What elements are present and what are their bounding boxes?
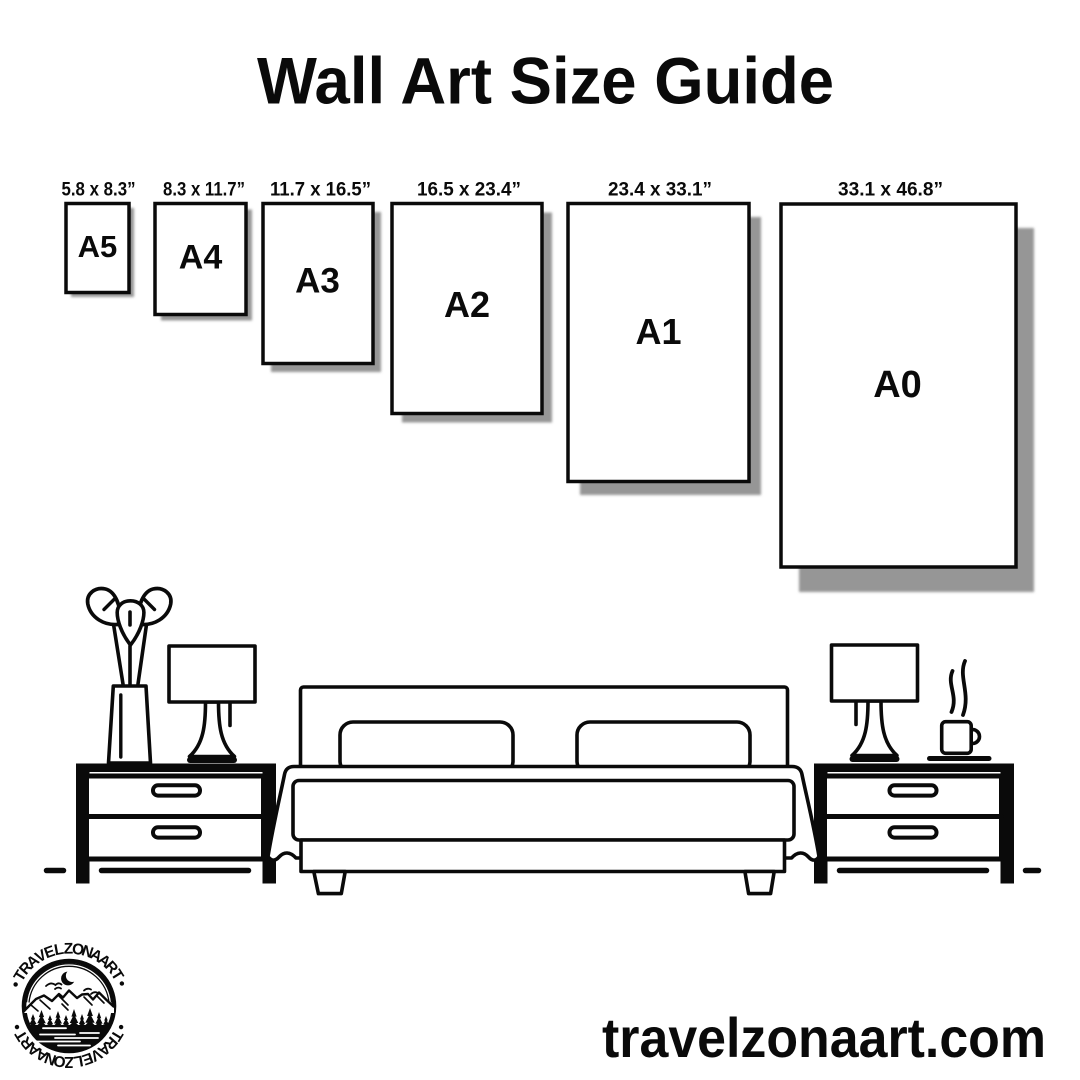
svg-text:16.5 x 23.4”: 16.5 x 23.4” — [417, 179, 521, 201]
svg-text:A1: A1 — [635, 311, 681, 352]
svg-text:A5: A5 — [78, 229, 118, 264]
svg-text:23.4 x 33.1”: 23.4 x 33.1” — [608, 179, 712, 201]
svg-text:5.8 x 8.3”: 5.8 x 8.3” — [62, 179, 136, 201]
svg-text:A2: A2 — [444, 284, 490, 325]
svg-text:33.1 x 46.8”: 33.1 x 46.8” — [838, 179, 943, 201]
svg-text:A4: A4 — [179, 239, 223, 277]
svg-text:8.3 x 11.7”: 8.3 x 11.7” — [163, 179, 245, 201]
svg-text:Wall Art Size Guide: Wall Art Size Guide — [257, 44, 834, 118]
svg-text:A3: A3 — [295, 262, 340, 301]
svg-text:A0: A0 — [873, 364, 922, 406]
svg-text:travelzonaart.com: travelzonaart.com — [602, 1006, 1046, 1069]
svg-text:11.7 x 16.5”: 11.7 x 16.5” — [270, 179, 371, 201]
